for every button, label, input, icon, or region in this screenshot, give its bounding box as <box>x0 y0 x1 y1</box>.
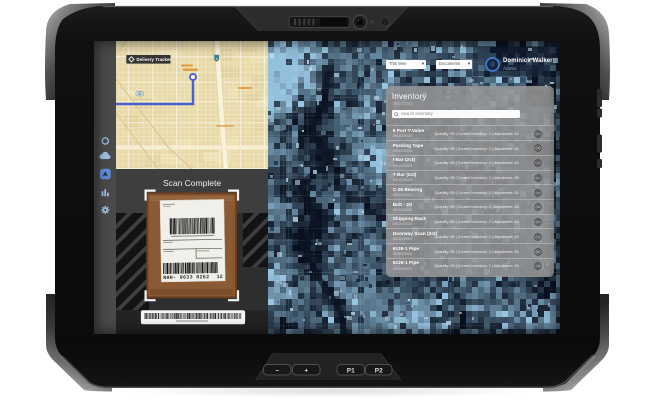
svg-text:P1: P1 <box>347 367 355 374</box>
svg-text:−: − <box>275 367 279 374</box>
svg-text:80: 80 <box>138 92 142 96</box>
svg-text:12: 12 <box>217 274 223 280</box>
svg-text:+: + <box>304 367 308 374</box>
svg-text:Delivery Tracker: Delivery Tracker <box>137 57 172 62</box>
svg-text:NHH- 9633 8262: NHH- 9633 8262 <box>163 274 209 281</box>
svg-text:P2: P2 <box>375 367 383 374</box>
